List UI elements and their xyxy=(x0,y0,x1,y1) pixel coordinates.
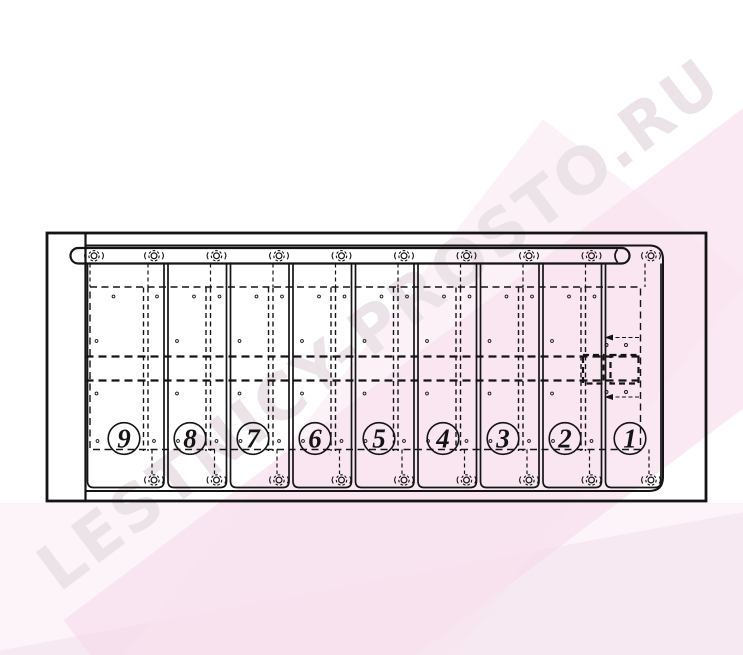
step-number-badge: 6 xyxy=(299,423,331,455)
screw-icon xyxy=(395,251,414,261)
screw-icon xyxy=(270,475,289,485)
screw-icon xyxy=(520,475,539,485)
screw-icon xyxy=(395,475,414,485)
screw-icon xyxy=(520,251,539,261)
screw-icon xyxy=(145,475,164,485)
screw-icon xyxy=(457,251,476,261)
step-number-badge: 5 xyxy=(363,423,395,455)
step-number-label: 1 xyxy=(623,424,637,454)
step-number-badges: 987654321 xyxy=(108,423,646,455)
screw-icon xyxy=(145,251,164,261)
step-number-badge: 9 xyxy=(108,423,140,455)
screw-icon xyxy=(270,251,289,261)
step-panel xyxy=(231,264,290,488)
step-number-badge: 2 xyxy=(549,423,581,455)
screw-icon xyxy=(85,251,104,261)
step-number-label: 2 xyxy=(557,424,572,454)
step-number-label: 5 xyxy=(372,424,386,454)
step-number-badge: 3 xyxy=(487,423,519,455)
end-bracket-detail xyxy=(583,335,640,401)
step-number-label: 8 xyxy=(183,424,197,454)
step-panel xyxy=(293,264,352,488)
step-number-badge: 8 xyxy=(174,423,206,455)
step-number-label: 7 xyxy=(246,424,261,454)
step-panel xyxy=(168,264,227,488)
screw-icon xyxy=(642,251,661,261)
screw-icon xyxy=(457,475,476,485)
staircase-assembly-drawing: 987654321 xyxy=(0,0,743,655)
screw-icon xyxy=(207,475,226,485)
screw-icon xyxy=(332,475,351,485)
step-number-badge: 4 xyxy=(427,423,459,455)
step-panel xyxy=(481,264,540,488)
step-number-label: 3 xyxy=(495,424,510,454)
step-number-label: 4 xyxy=(435,424,450,454)
step-number-label: 9 xyxy=(117,424,131,454)
step-number-label: 6 xyxy=(308,424,322,454)
screw-icon xyxy=(582,251,601,261)
step-number-badge: 7 xyxy=(237,423,269,455)
screw-icon xyxy=(332,251,351,261)
technical-drawing-page: LESTNICY-PROSTO.RU xyxy=(0,0,743,655)
step-panel xyxy=(543,264,602,488)
screw-icon xyxy=(642,475,661,485)
screw-icon xyxy=(582,475,601,485)
outer-frame xyxy=(47,233,706,501)
screw-dots xyxy=(95,295,596,442)
hidden-stringer-dashes xyxy=(144,288,586,452)
screw-icon xyxy=(207,251,226,261)
